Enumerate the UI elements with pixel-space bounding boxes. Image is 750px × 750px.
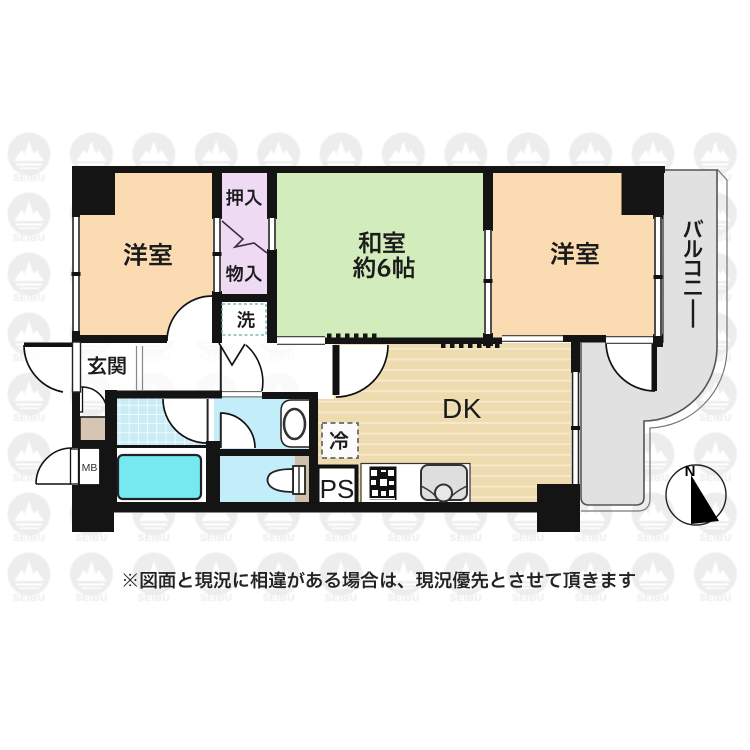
svg-text:SEIBU: SEIBU: [325, 533, 358, 544]
svg-text:N: N: [685, 463, 696, 480]
svg-text:SEIBU: SEIBU: [138, 533, 171, 544]
svg-text:SEIBU: SEIBU: [699, 473, 732, 484]
svg-text:SEIBU: SEIBU: [512, 593, 545, 604]
svg-text:SEIBU: SEIBU: [387, 593, 420, 604]
svg-text:SEIBU: SEIBU: [13, 413, 46, 424]
svg-text:MB: MB: [82, 462, 98, 474]
svg-text:SEIBU: SEIBU: [138, 593, 171, 604]
svg-text:SEIBU: SEIBU: [200, 533, 233, 544]
svg-text:SEIBU: SEIBU: [262, 533, 295, 544]
svg-text:SEIBU: SEIBU: [75, 593, 108, 604]
svg-text:SEIBU: SEIBU: [13, 593, 46, 604]
svg-text:SEIBU: SEIBU: [450, 533, 483, 544]
svg-text:SEIBU: SEIBU: [325, 593, 358, 604]
svg-text:SEIBU: SEIBU: [574, 533, 607, 544]
svg-text:SEIBU: SEIBU: [13, 173, 46, 184]
svg-text:SEIBU: SEIBU: [13, 293, 46, 304]
svg-text:SEIBU: SEIBU: [699, 413, 732, 424]
svg-text:SEIBU: SEIBU: [699, 593, 732, 604]
svg-text:SEIBU: SEIBU: [637, 593, 670, 604]
svg-text:SEIBU: SEIBU: [75, 533, 108, 544]
svg-text:PS: PS: [320, 474, 355, 504]
svg-text:SEIBU: SEIBU: [450, 593, 483, 604]
svg-text:SEIBU: SEIBU: [512, 533, 545, 544]
svg-text:SEIBU: SEIBU: [699, 533, 732, 544]
svg-text:SEIBU: SEIBU: [387, 533, 420, 544]
svg-text:SEIBU: SEIBU: [574, 593, 607, 604]
svg-text:SEIBU: SEIBU: [262, 593, 295, 604]
svg-text:SEIBU: SEIBU: [200, 593, 233, 604]
svg-text:DK: DK: [442, 393, 482, 424]
svg-text:SEIBU: SEIBU: [13, 233, 46, 244]
svg-text:SEIBU: SEIBU: [13, 533, 46, 544]
svg-text:SEIBU: SEIBU: [637, 533, 670, 544]
